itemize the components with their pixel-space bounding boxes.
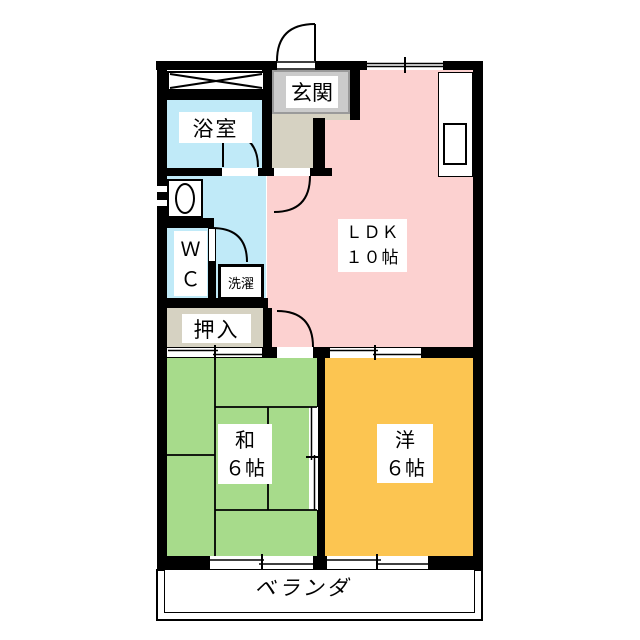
wall-genkan-right (350, 61, 360, 120)
washitsu-youshitsu-sliding-door (309, 407, 318, 510)
oshiire-label: 押入 (182, 314, 251, 343)
ldk-label: ＬＤＫ１０帖 (338, 219, 407, 272)
ldk-washitsu-door-opening (277, 347, 313, 358)
youshitsu-veranda-window (327, 556, 428, 569)
veranda-label: ベランダ (245, 574, 360, 600)
wall-right (473, 61, 483, 569)
entrance-door-opening (277, 61, 315, 70)
wall-washitsu-youshitsu-divider (317, 358, 325, 556)
wall-bottom (157, 556, 483, 569)
washitsu-veranda-window (210, 556, 313, 569)
wall-left (157, 61, 167, 569)
ldk-youshitsu-sliding-door (330, 348, 421, 358)
wall-oshiire-right (263, 308, 272, 347)
wc-door-leaf (208, 228, 216, 262)
ldk-top-window (367, 61, 443, 70)
bathroom-label: 浴室 (179, 112, 252, 143)
floor-plan: 玄関 浴室 ＷＣ 洗濯 押入 ＬＤＫ１０帖 和６帖 洋６帖 ベランダ (0, 0, 640, 640)
genkan-label: 玄関 (286, 76, 338, 108)
laundry-box: 洗濯 (218, 264, 264, 300)
wall-under-storage (167, 91, 265, 100)
washbasin-bowl-icon (175, 183, 195, 214)
wall-wc-door-stub (208, 262, 216, 298)
washitsu-label: 和６帖 (218, 424, 272, 484)
bathroom-door-opening (222, 168, 258, 176)
hall-ldk-door-opening (274, 168, 310, 176)
kitchen-sink (443, 123, 467, 165)
storage-cross-box (167, 71, 265, 91)
wall-wc-top (157, 218, 214, 228)
youshitsu-label: 洋６帖 (377, 424, 433, 483)
oshiire-sliding-door (167, 348, 262, 357)
wc-label: ＷＣ (174, 231, 207, 296)
